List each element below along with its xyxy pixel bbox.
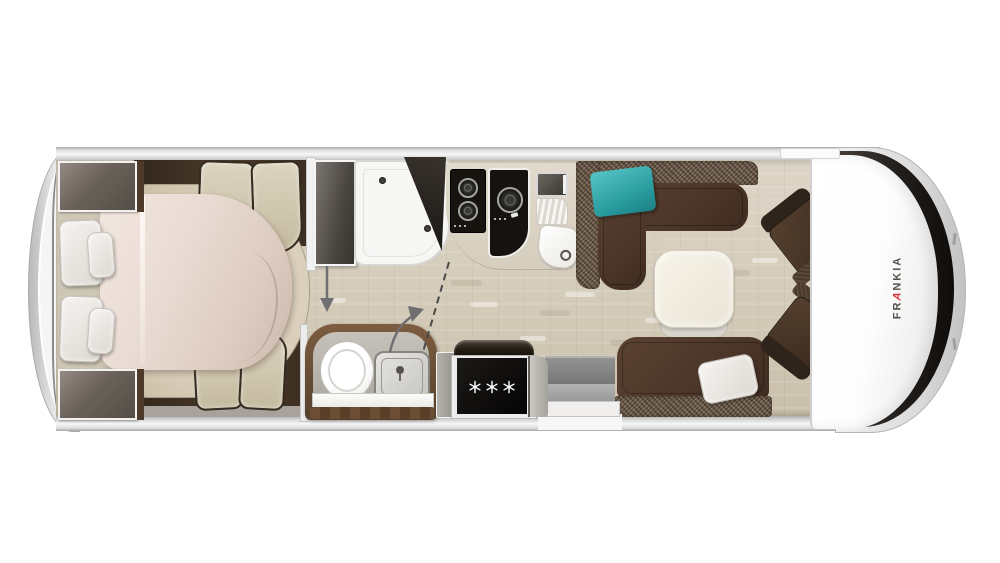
wordmark-suffix: NKIA xyxy=(892,256,904,291)
entry-arrow-head-icon xyxy=(320,298,334,312)
swing-arrow-head-icon xyxy=(408,306,424,322)
roof-marker xyxy=(780,148,840,159)
rv-floorplan: FRANKIA xyxy=(0,0,1000,563)
wordmark-prefix: FR xyxy=(892,301,904,320)
door-swing-line xyxy=(423,262,449,352)
frankia-wordmark: FRANKIA xyxy=(892,248,905,328)
